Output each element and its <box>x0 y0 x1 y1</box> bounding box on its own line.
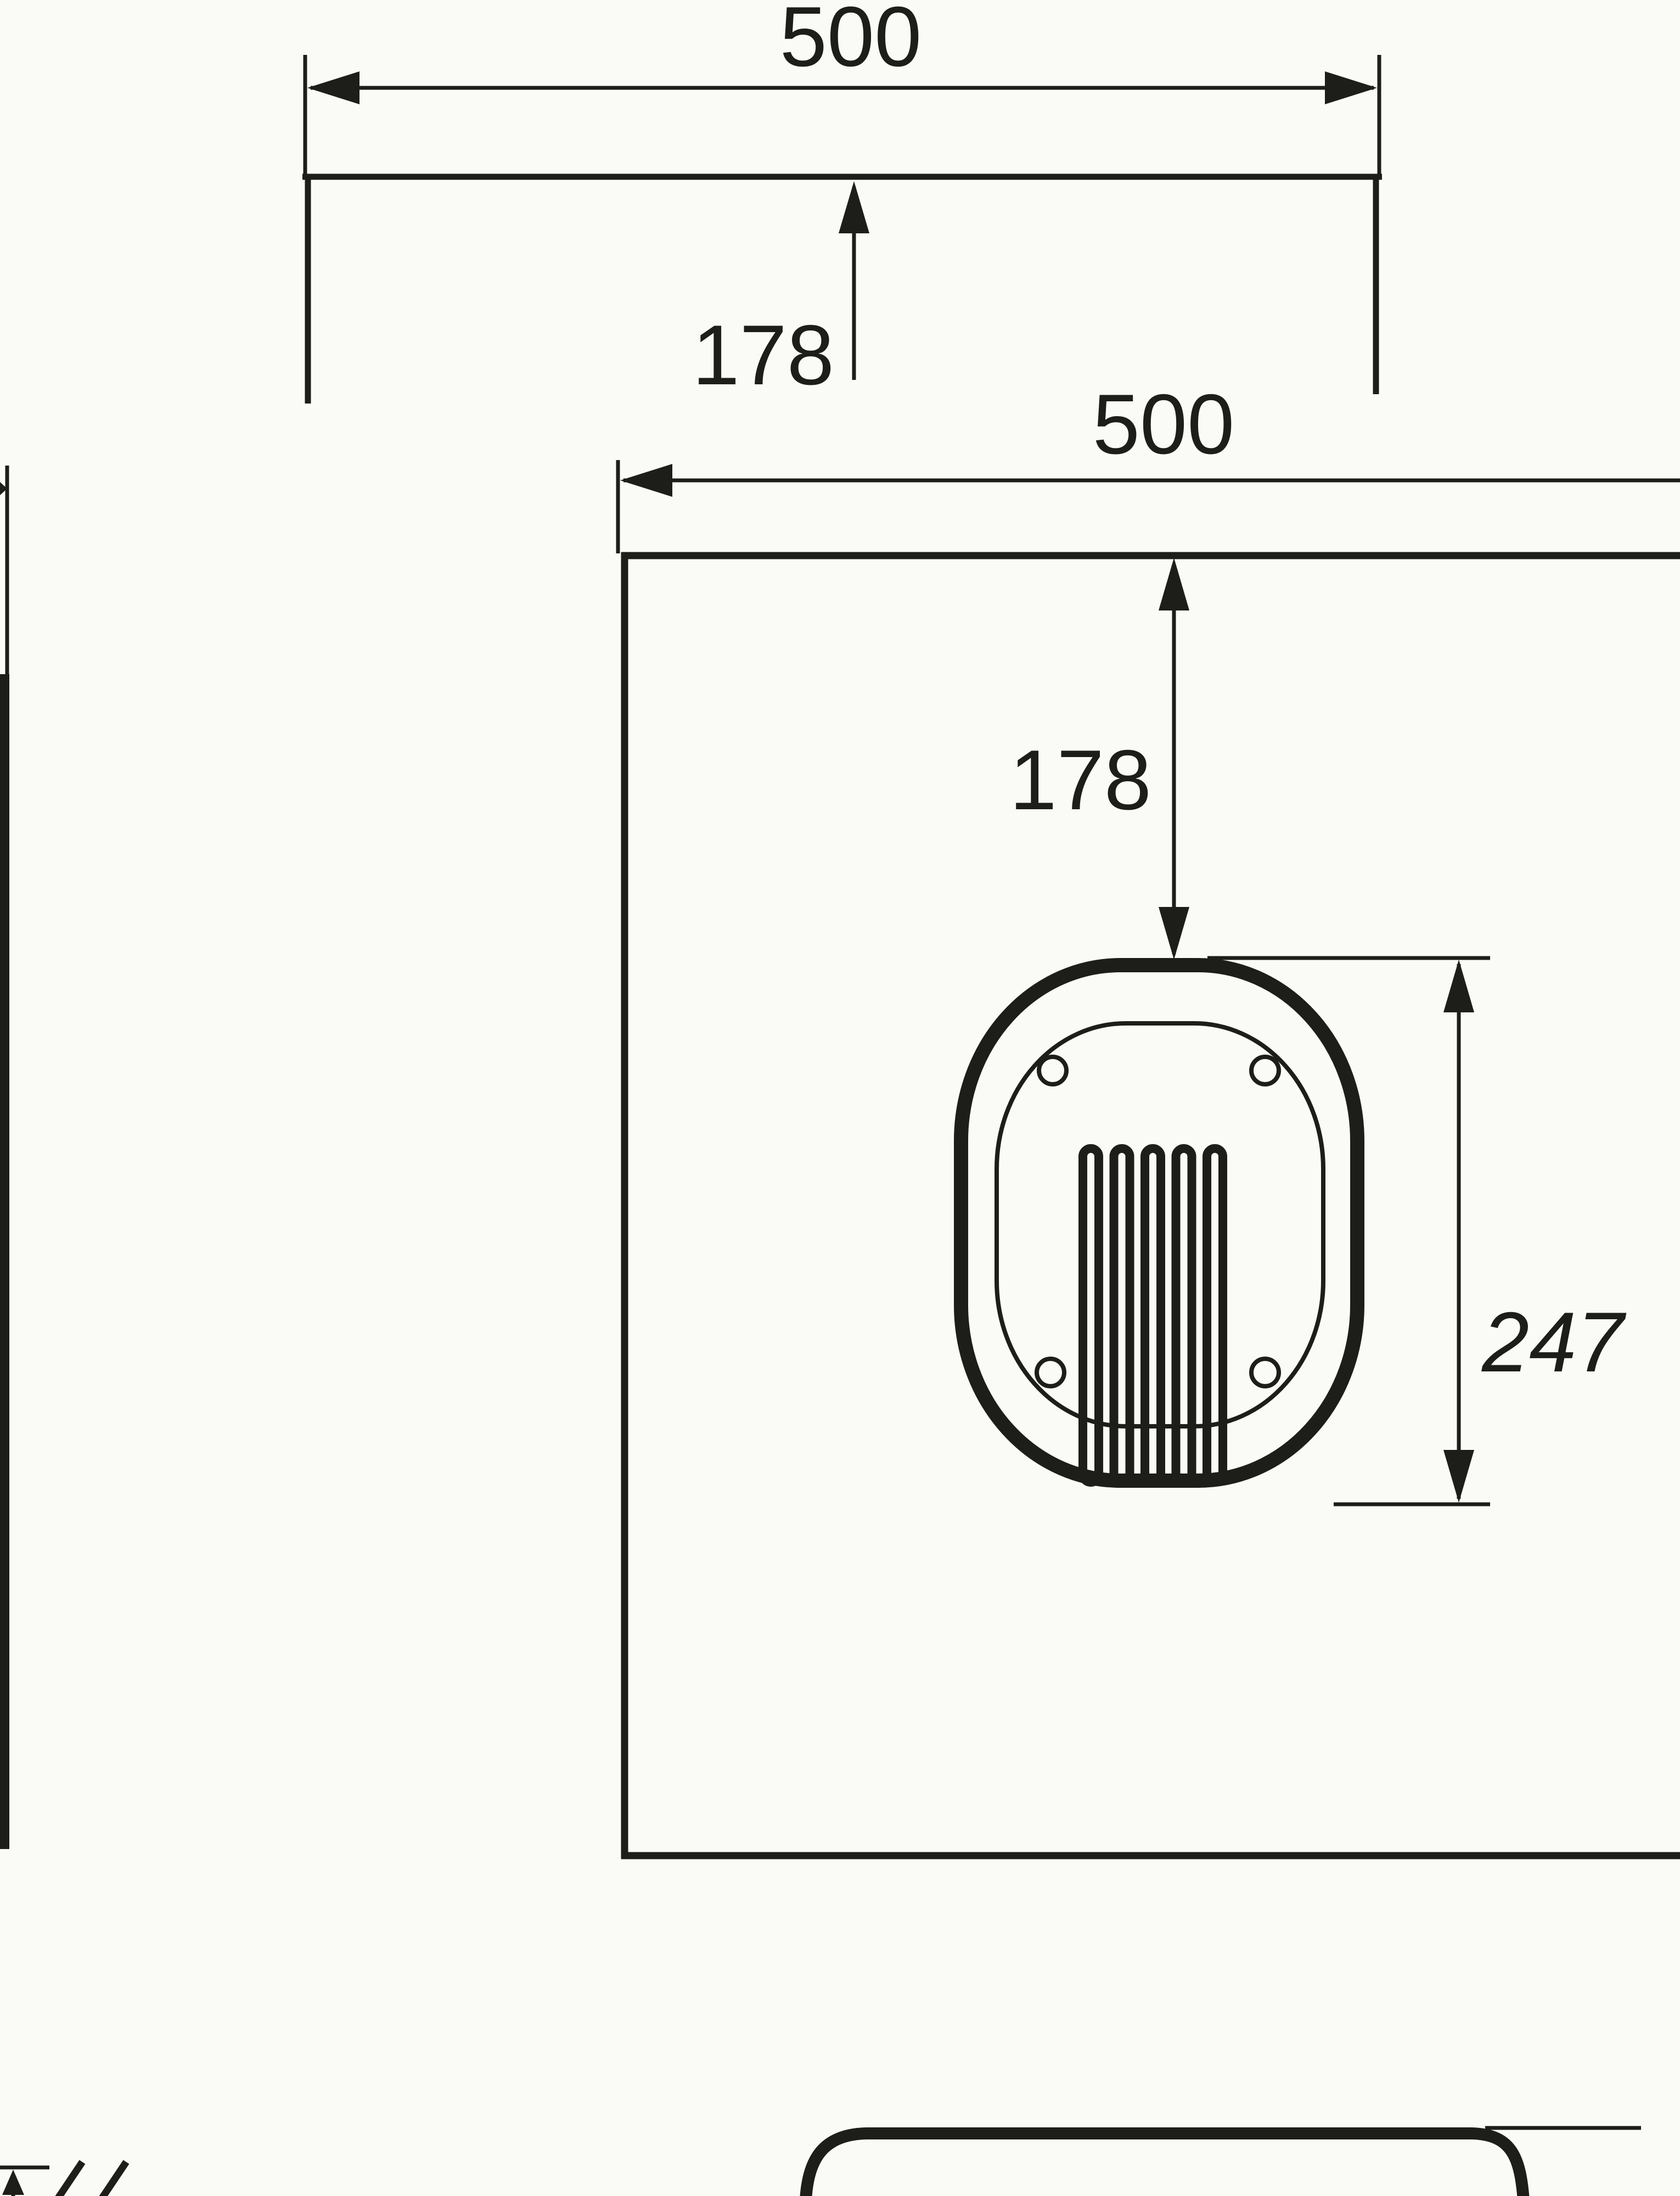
cutout-height-dim-label: 247 <box>1481 1295 1626 1390</box>
bolt-hole-top-right <box>1251 1057 1279 1084</box>
detail-oval-top-outline <box>806 2133 1524 2196</box>
element-tube-2 <box>1114 1149 1130 1482</box>
top-view: 500 178 <box>302 0 1382 404</box>
bolt-hole-bottom-right <box>1251 1359 1279 1386</box>
bolt-hole-bottom-left <box>1037 1359 1064 1386</box>
element-tube-1 <box>1083 1149 1099 1482</box>
dim-arrowhead-down-icon <box>1159 907 1189 960</box>
hatch-mark-1 <box>57 2162 82 2196</box>
dim-arrowhead-left-icon <box>620 464 672 497</box>
front-view: 500 178 247 <box>618 377 1680 1859</box>
front-offset-dim-label: 178 <box>1009 732 1151 827</box>
dim-arrowhead-up-icon <box>839 181 869 233</box>
dim-arrowhead-up-icon <box>1159 558 1189 610</box>
front-width-dim-label: 500 <box>1093 377 1235 472</box>
heating-element <box>1083 1149 1223 1482</box>
side-panel-edge <box>0 674 9 1849</box>
element-tube-5 <box>1207 1149 1223 1482</box>
dim-arrowhead-left-icon <box>307 71 359 104</box>
dim-arrowhead-up-icon <box>2 2170 24 2195</box>
dim-arrowhead-right-icon <box>1325 71 1377 104</box>
element-tube-3 <box>1145 1149 1161 1482</box>
top-offset-dim-label: 178 <box>692 307 834 402</box>
bottom-left-dim-fragment <box>0 2162 126 2196</box>
hatch-mark-2 <box>100 2162 126 2196</box>
dim-arrowhead-down-icon <box>1443 1450 1474 1503</box>
technical-drawing-canvas: 500 178 500 <box>0 0 1680 2196</box>
bolt-hole-top-left <box>1039 1057 1066 1084</box>
bottom-detail-view <box>806 2128 1641 2196</box>
side-view-sliver <box>0 466 9 1849</box>
top-width-dim-label: 500 <box>780 0 922 84</box>
dim-arrowhead-up-icon <box>1443 960 1474 1012</box>
element-tube-4 <box>1176 1149 1192 1482</box>
drawing-sheet: 500 178 500 <box>0 0 1680 2196</box>
